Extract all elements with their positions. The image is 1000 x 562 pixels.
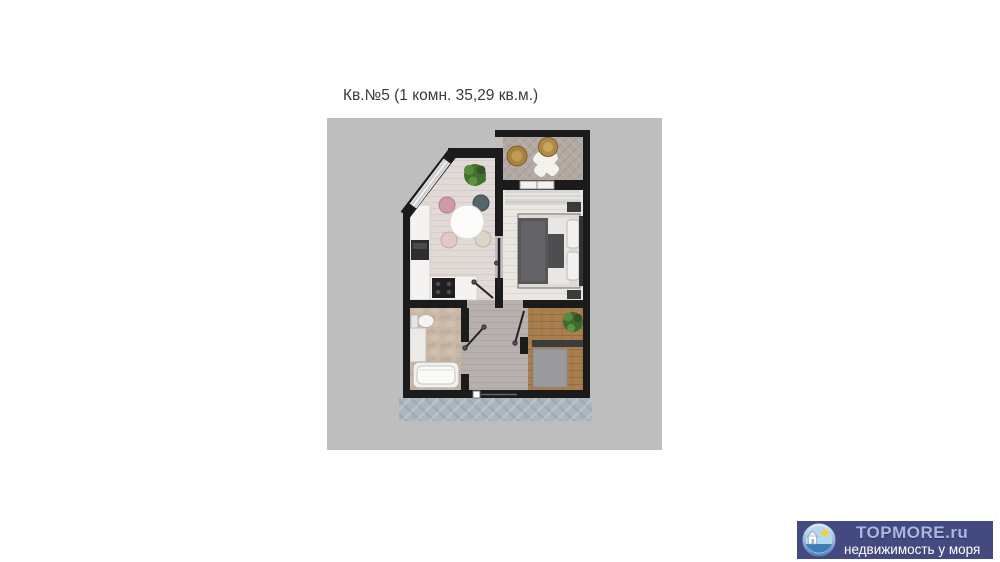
nightstand [567,290,581,299]
floorplan-canvas [327,118,662,450]
wall-bathroom-hall-upper [461,308,469,342]
hallway-floor [461,300,530,390]
entry-rug [533,349,567,387]
table-top [450,205,484,239]
balcony-door-window [520,181,554,189]
wall-balcony-top [495,130,590,137]
plan-title: Кв.№5 (1 комн. 35,29 кв.м.) [343,87,538,105]
logo-brand: TOPMORE.ru [856,524,968,542]
wall-bathroom-hall-lower [461,374,469,390]
nightstand [567,202,581,212]
vanity [410,328,426,362]
corridor-tiles [399,398,592,421]
headboard [579,216,583,286]
bathtub [413,362,459,388]
logo-tagline: недвижимость у моря [844,542,980,557]
rattan-chair-icon [539,138,558,157]
topmore-logo: TOPMORE.ru недвижимость у моря [797,521,993,559]
logo-text: TOPMORE.ru недвижимость у моря [844,524,980,557]
wall-kitchen-bathroom [403,300,467,308]
pillow [567,252,579,280]
topmore-house-sun-icon [802,523,836,557]
page: Кв.№5 (1 комн. 35,29 кв.м.) [0,0,1000,562]
wall-entry-stub [520,337,528,354]
bedroom-furniture [518,202,583,299]
bed [518,214,583,288]
floorplan-drawing [327,118,662,450]
chair [439,197,455,213]
pillow [567,220,579,248]
plant-icon [464,164,486,186]
rattan-chair-icon [507,146,527,166]
plant-icon [563,312,583,332]
wall-kitchen-bedroom [495,148,503,236]
cooktop [432,278,455,298]
wall-entry-top [523,300,583,308]
toilet [411,315,434,329]
wall-right [583,130,590,398]
entry-shelf [532,340,583,347]
